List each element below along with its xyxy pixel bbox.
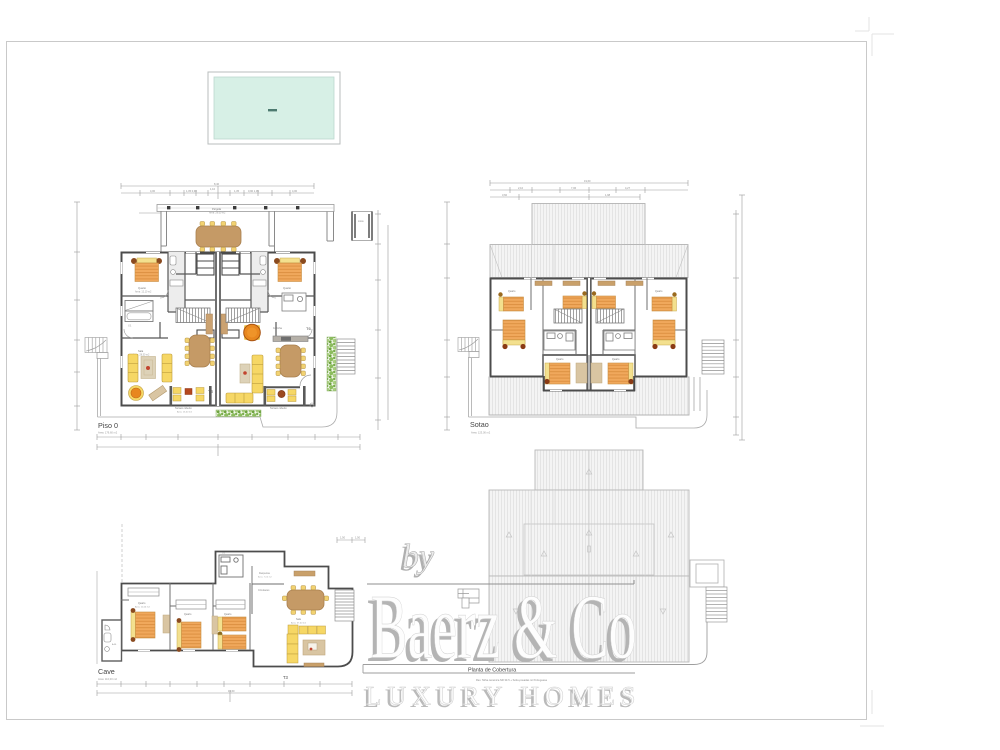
- svg-text:Circulacao: Circulacao: [258, 589, 270, 592]
- svg-text:8,40: 8,40: [214, 182, 220, 186]
- svg-text:Terraco coberto: Terraco coberto: [270, 407, 287, 410]
- svg-text:Quarto: Quarto: [184, 613, 192, 616]
- svg-text:Quarto: Quarto: [138, 602, 146, 605]
- svg-text:1,50: 1,50: [340, 536, 346, 540]
- svg-text:Area: 37,00 m2: Area: 37,00 m2: [291, 621, 307, 624]
- svg-text:Sala: Sala: [296, 618, 301, 621]
- svg-text:Baerz & Co: Baerz & Co: [371, 576, 637, 678]
- svg-text:I.S.: I.S.: [222, 553, 226, 555]
- svg-text:Area: 179,60 m2: Area: 179,60 m2: [98, 431, 118, 435]
- svg-text:4,00: 4,00: [292, 189, 298, 193]
- svg-text:Area: 7,00 m2: Area: 7,00 m2: [258, 575, 273, 578]
- svg-text:Quarto: Quarto: [283, 286, 291, 290]
- svg-text:4,27: 4,27: [625, 186, 631, 190]
- svg-text:4,00: 4,00: [150, 189, 156, 193]
- svg-text:1,10: 1,10: [210, 187, 216, 191]
- svg-text:1,98: 1,98: [605, 193, 611, 197]
- svg-text:Quarto: Quarto: [508, 290, 516, 293]
- svg-text:Sotao: Sotao: [470, 420, 489, 429]
- svg-text:A.M.: A.M.: [112, 643, 117, 646]
- svg-text:Area: 13,00 m2: Area: 13,00 m2: [177, 410, 193, 413]
- svg-text:T6: T6: [306, 326, 311, 331]
- svg-text:7,06: 7,06: [571, 186, 577, 190]
- svg-text:Piso 0: Piso 0: [98, 421, 118, 430]
- svg-text:Quarto: Quarto: [138, 286, 146, 290]
- svg-text:by: by: [402, 539, 435, 576]
- svg-text:T3: T3: [283, 675, 289, 680]
- svg-text:Quarto: Quarto: [224, 613, 232, 616]
- svg-text:Pergola: Pergola: [212, 207, 221, 211]
- svg-text:0,90 1,05: 0,90 1,05: [248, 189, 259, 193]
- svg-text:Area: 110,00 m2: Area: 110,00 m2: [98, 677, 118, 681]
- svg-text:Quarto: Quarto: [612, 358, 620, 361]
- svg-text:Quarto: Quarto: [556, 358, 564, 361]
- svg-text:Area: 29,00 m2: Area: 29,00 m2: [209, 211, 226, 214]
- svg-text:Area: 12,10 m2: Area: 12,10 m2: [135, 291, 152, 294]
- svg-text:1,05 0,90: 1,05 0,90: [186, 189, 197, 193]
- svg-text:2,10: 2,10: [518, 186, 524, 190]
- svg-text:Quarto: Quarto: [655, 290, 663, 293]
- svg-text:1,35: 1,35: [234, 189, 240, 193]
- svg-text:1,50: 1,50: [355, 536, 361, 540]
- svg-text:Terraco coberto: Terraco coberto: [175, 407, 192, 410]
- svg-text:I.S.: I.S.: [128, 325, 132, 328]
- svg-text:19,60: 19,60: [228, 689, 235, 693]
- svg-text:Lixos: Lixos: [358, 220, 364, 223]
- svg-text:Despensa: Despensa: [259, 572, 270, 575]
- svg-text:Sala: Sala: [138, 349, 144, 353]
- svg-text:Cave: Cave: [98, 667, 115, 676]
- svg-text:3,60: 3,60: [502, 193, 508, 197]
- svg-text:Area: 123,00 m2: Area: 123,00 m2: [471, 431, 491, 435]
- svg-text:Area: 11,00 m2: Area: 11,00 m2: [135, 605, 151, 608]
- svg-text:Cozinha: Cozinha: [273, 327, 282, 330]
- svg-text:19,60: 19,60: [584, 179, 591, 183]
